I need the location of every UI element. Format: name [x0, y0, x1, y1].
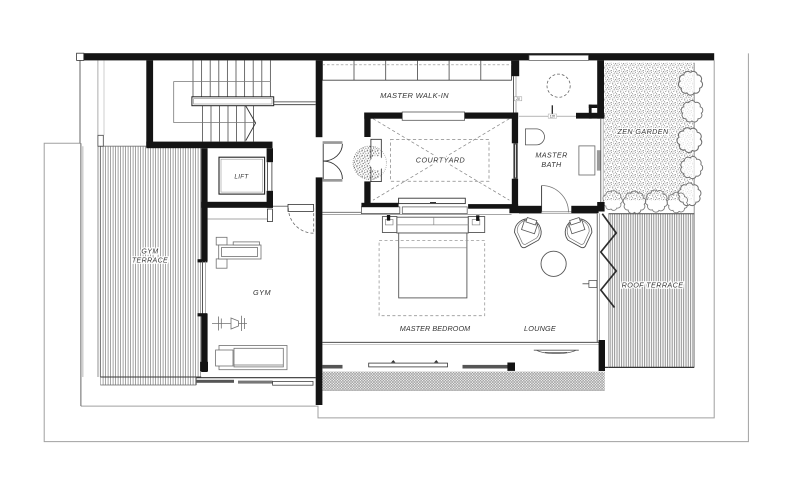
svg-text:GYM: GYM [141, 249, 158, 256]
svg-text:BATH: BATH [541, 160, 562, 169]
svg-text:ZEN GARDEN: ZEN GARDEN [616, 127, 669, 136]
svg-text:MASTER: MASTER [535, 151, 567, 160]
svg-text:TERRACE: TERRACE [132, 258, 168, 265]
svg-text:COURTYARD: COURTYARD [416, 155, 466, 164]
svg-text:GYM: GYM [253, 288, 272, 297]
svg-text:LOUNGE: LOUNGE [524, 324, 556, 333]
svg-text:MASTER WALK-IN: MASTER WALK-IN [380, 91, 449, 100]
svg-text:20: 20 [515, 97, 520, 101]
svg-text:MASTER BEDROOM: MASTER BEDROOM [400, 324, 471, 333]
svg-text:120: 120 [550, 115, 556, 119]
svg-text:ROOF TERRACE: ROOF TERRACE [622, 281, 684, 290]
svg-text:LIFT: LIFT [234, 174, 249, 181]
